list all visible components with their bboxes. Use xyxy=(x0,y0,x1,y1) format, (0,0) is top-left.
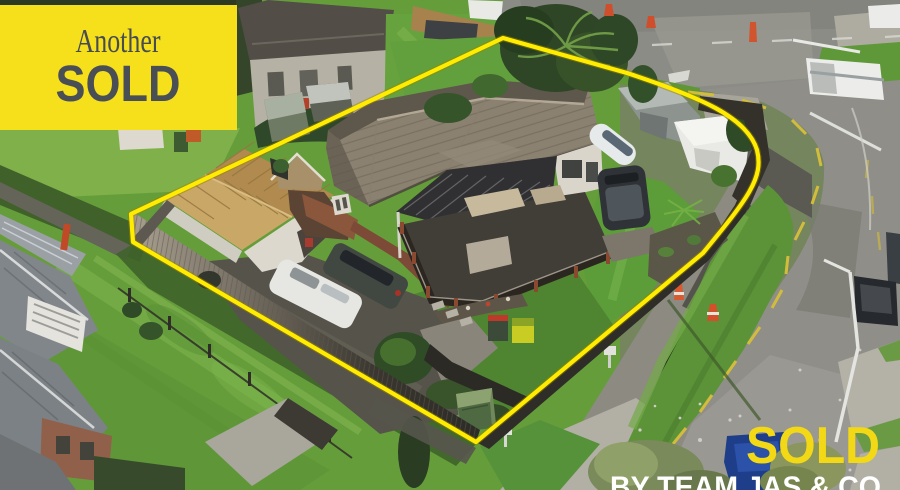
svg-text:SOLD: SOLD xyxy=(56,55,181,112)
svg-text:BY TEAM JAS & CO: BY TEAM JAS & CO xyxy=(610,471,881,490)
svg-text:SOLD: SOLD xyxy=(746,417,880,475)
